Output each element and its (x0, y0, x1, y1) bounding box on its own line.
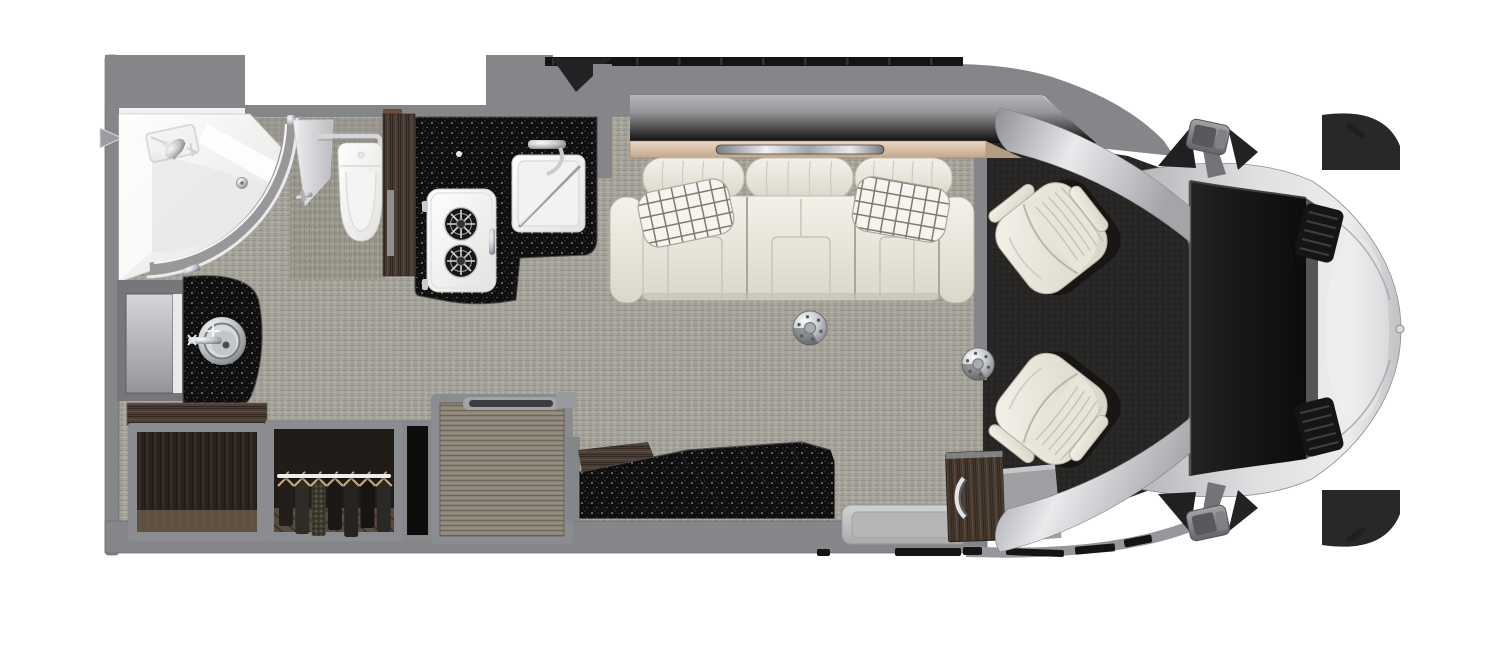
fender-shadow-top (1322, 113, 1400, 170)
cooktop-hinge-bottom (422, 279, 428, 290)
garment (377, 482, 391, 532)
pedestal-bolt (974, 352, 977, 355)
shower-drain-center (240, 181, 244, 185)
pedestal-bolt (968, 370, 971, 373)
mirror-edge-strip (173, 294, 182, 393)
bumper-sensor (1396, 325, 1404, 333)
chest-latch-slot (469, 400, 553, 407)
seal-tick (888, 58, 891, 65)
three-seat-sofa (610, 158, 974, 303)
open-cabinet (128, 423, 266, 541)
slot-cabinet (402, 420, 433, 541)
burner-cap (457, 257, 466, 266)
hood-highlight (1325, 238, 1389, 422)
pedestal-post (805, 323, 816, 334)
bench (566, 437, 834, 521)
vanity-drain (223, 342, 230, 349)
pedestal-post (973, 359, 983, 369)
seal-tick (930, 58, 933, 65)
closet-rod (277, 474, 391, 478)
toilet (338, 143, 382, 241)
windshield (1190, 181, 1306, 476)
wardrobe (265, 420, 403, 541)
storage-chest (431, 392, 576, 544)
pedestal-bolt (806, 315, 809, 318)
toilet-flush-button (358, 152, 364, 158)
slide-wall-right (974, 158, 987, 380)
seal-tick (762, 58, 765, 65)
garment (361, 482, 375, 528)
mirror-cabinet (126, 294, 173, 393)
entry-step-inner (852, 512, 960, 538)
pedestal-bolt (979, 373, 982, 376)
garment (279, 482, 293, 526)
vanity-lower-top (127, 403, 267, 425)
vanity (117, 276, 262, 409)
backrest-cushion (746, 158, 853, 198)
garment (312, 482, 326, 536)
exterior-step (963, 547, 982, 555)
table-pedestal (962, 348, 994, 380)
pedestal-bolt (797, 323, 800, 326)
left-wall (105, 55, 119, 555)
pedestal-bolt (800, 334, 803, 337)
sofa-front-edge (643, 293, 939, 299)
closet-rod-shadow (277, 478, 391, 480)
pedestal-bolt (819, 330, 822, 333)
exterior-step (895, 548, 961, 556)
kitchen-faucet-base (528, 140, 566, 149)
sink-basin (518, 161, 579, 226)
two-burner-cooktop (422, 189, 496, 292)
seal-tick (636, 58, 639, 65)
table-pedestal (793, 311, 827, 345)
garment (295, 482, 309, 534)
chest-top (440, 403, 564, 536)
seal-tick (846, 58, 849, 65)
pedestal-bolt (817, 318, 820, 321)
rear-top-block (105, 55, 245, 110)
led-light-strip (716, 145, 884, 154)
floorplan-svg: Motorhome floor plan - top-down interior… (0, 0, 1500, 667)
bench-wall-jog (566, 437, 580, 521)
counter-knob (456, 151, 462, 157)
fender-shadow-bottom (1322, 490, 1400, 547)
floorplan-canvas: Motorhome floor plan - top-down interior… (0, 0, 1500, 667)
burner (445, 245, 478, 278)
panel-metal-strip (387, 190, 394, 256)
open-cabinet-floor (137, 510, 257, 532)
seal-tick (720, 58, 723, 65)
pedestal-bolt (811, 338, 814, 341)
cooktop-hinge-top (422, 201, 428, 212)
seal-tick (678, 58, 681, 65)
top-wall-block (486, 55, 553, 117)
seal-tick (804, 58, 807, 65)
garment (344, 482, 358, 537)
cooktop-handle (489, 228, 495, 255)
pedestal-bolt (984, 355, 987, 358)
burner (445, 208, 478, 241)
pedestal-bolt (966, 359, 969, 362)
garment (328, 482, 342, 530)
chest-latch-tab (556, 392, 576, 408)
burner-cap (457, 220, 466, 229)
slot-interior (407, 426, 428, 535)
exterior-step (817, 549, 830, 556)
pedestal-bolt (987, 366, 990, 369)
